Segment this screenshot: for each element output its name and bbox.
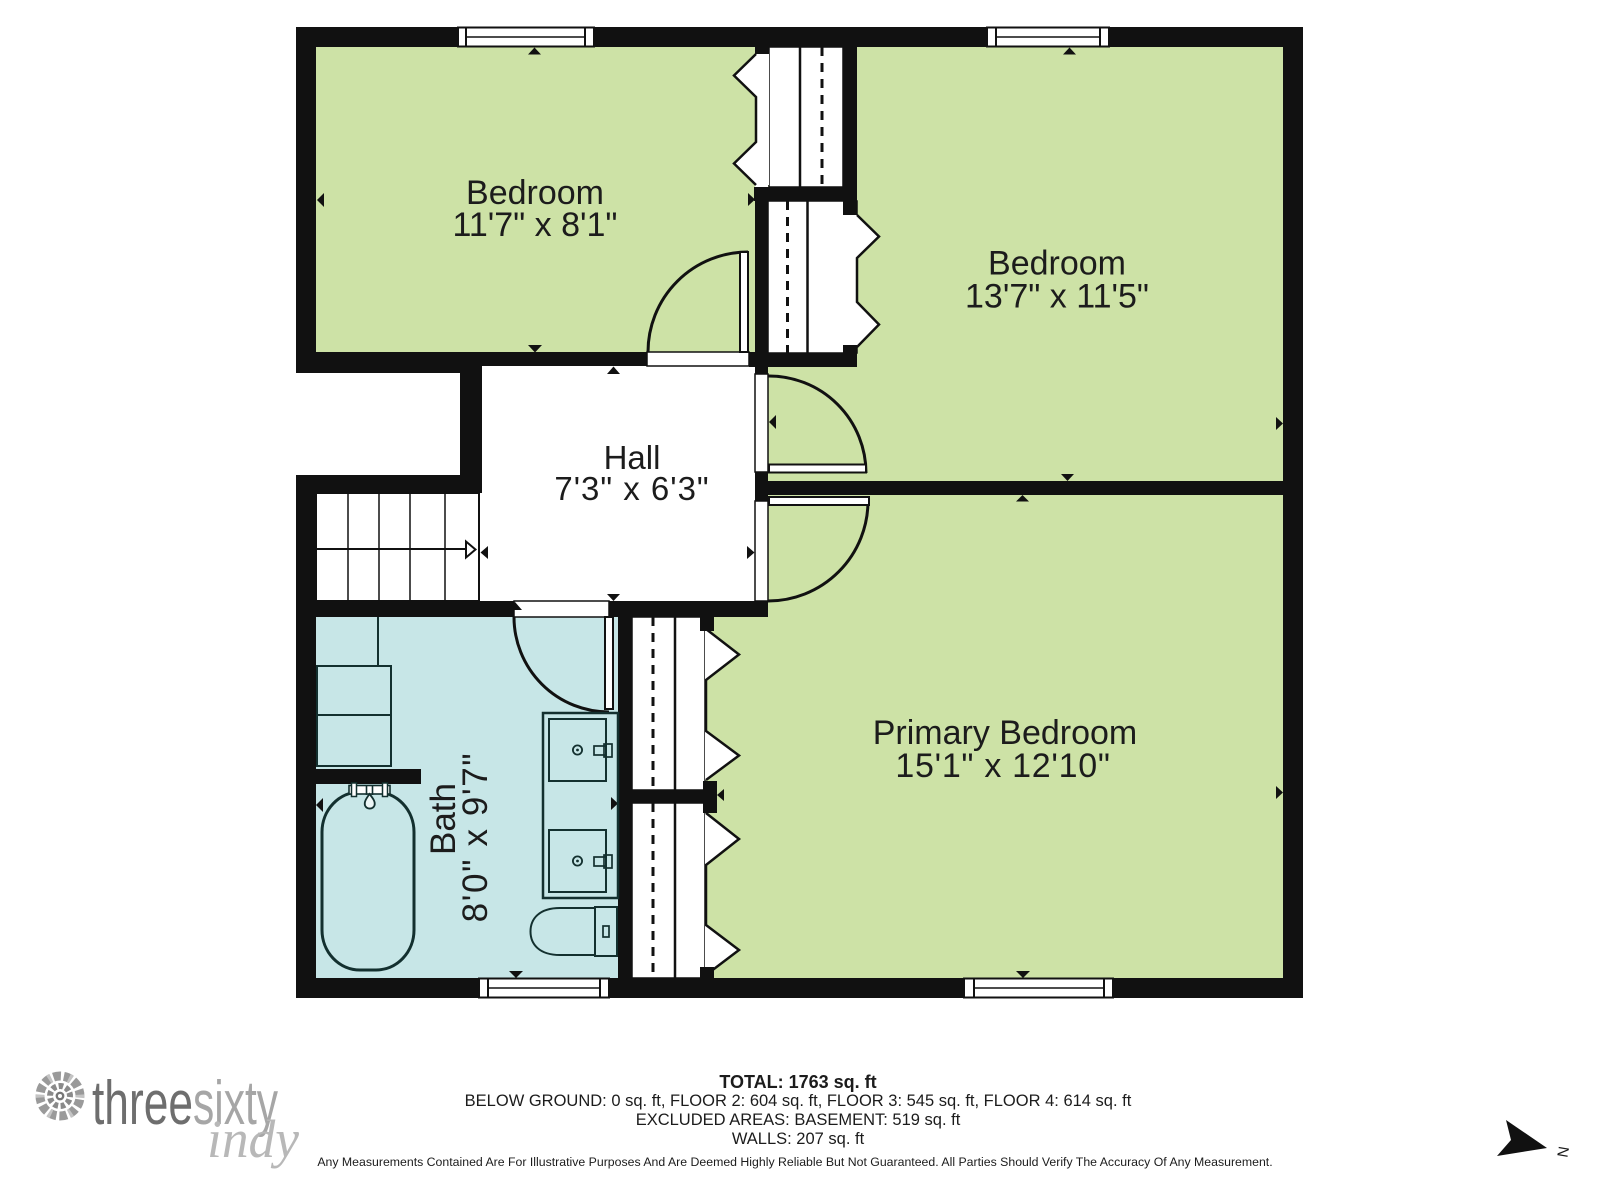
svg-text:11'7" x 8'1": 11'7" x 8'1": [452, 206, 617, 244]
svg-text:7'3" x 6'3": 7'3" x 6'3": [554, 470, 709, 507]
svg-text:N: N: [1553, 1145, 1572, 1159]
svg-text:BELOW GROUND: 0 sq. ft, FLOOR: BELOW GROUND: 0 sq. ft, FLOOR 2: 604 sq.…: [465, 1092, 1132, 1110]
svg-text:indy: indy: [207, 1109, 299, 1169]
svg-text:WALLS: 207 sq. ft: WALLS: 207 sq. ft: [732, 1130, 865, 1148]
svg-text:TOTAL: 1763 sq. ft: TOTAL: 1763 sq. ft: [719, 1072, 876, 1092]
svg-text:three: three: [92, 1069, 193, 1138]
svg-text:15'1" x 12'10": 15'1" x 12'10": [895, 747, 1110, 785]
svg-text:EXCLUDED AREAS: BASEMENT: 519: EXCLUDED AREAS: BASEMENT: 519 sq. ft: [636, 1111, 961, 1129]
svg-text:13'7" x 11'5": 13'7" x 11'5": [965, 278, 1149, 316]
svg-text:Any Measurements Contained Are: Any Measurements Contained Are For Illus…: [317, 1155, 1272, 1169]
svg-text:8'0" x 9'7": 8'0" x 9'7": [456, 752, 495, 923]
